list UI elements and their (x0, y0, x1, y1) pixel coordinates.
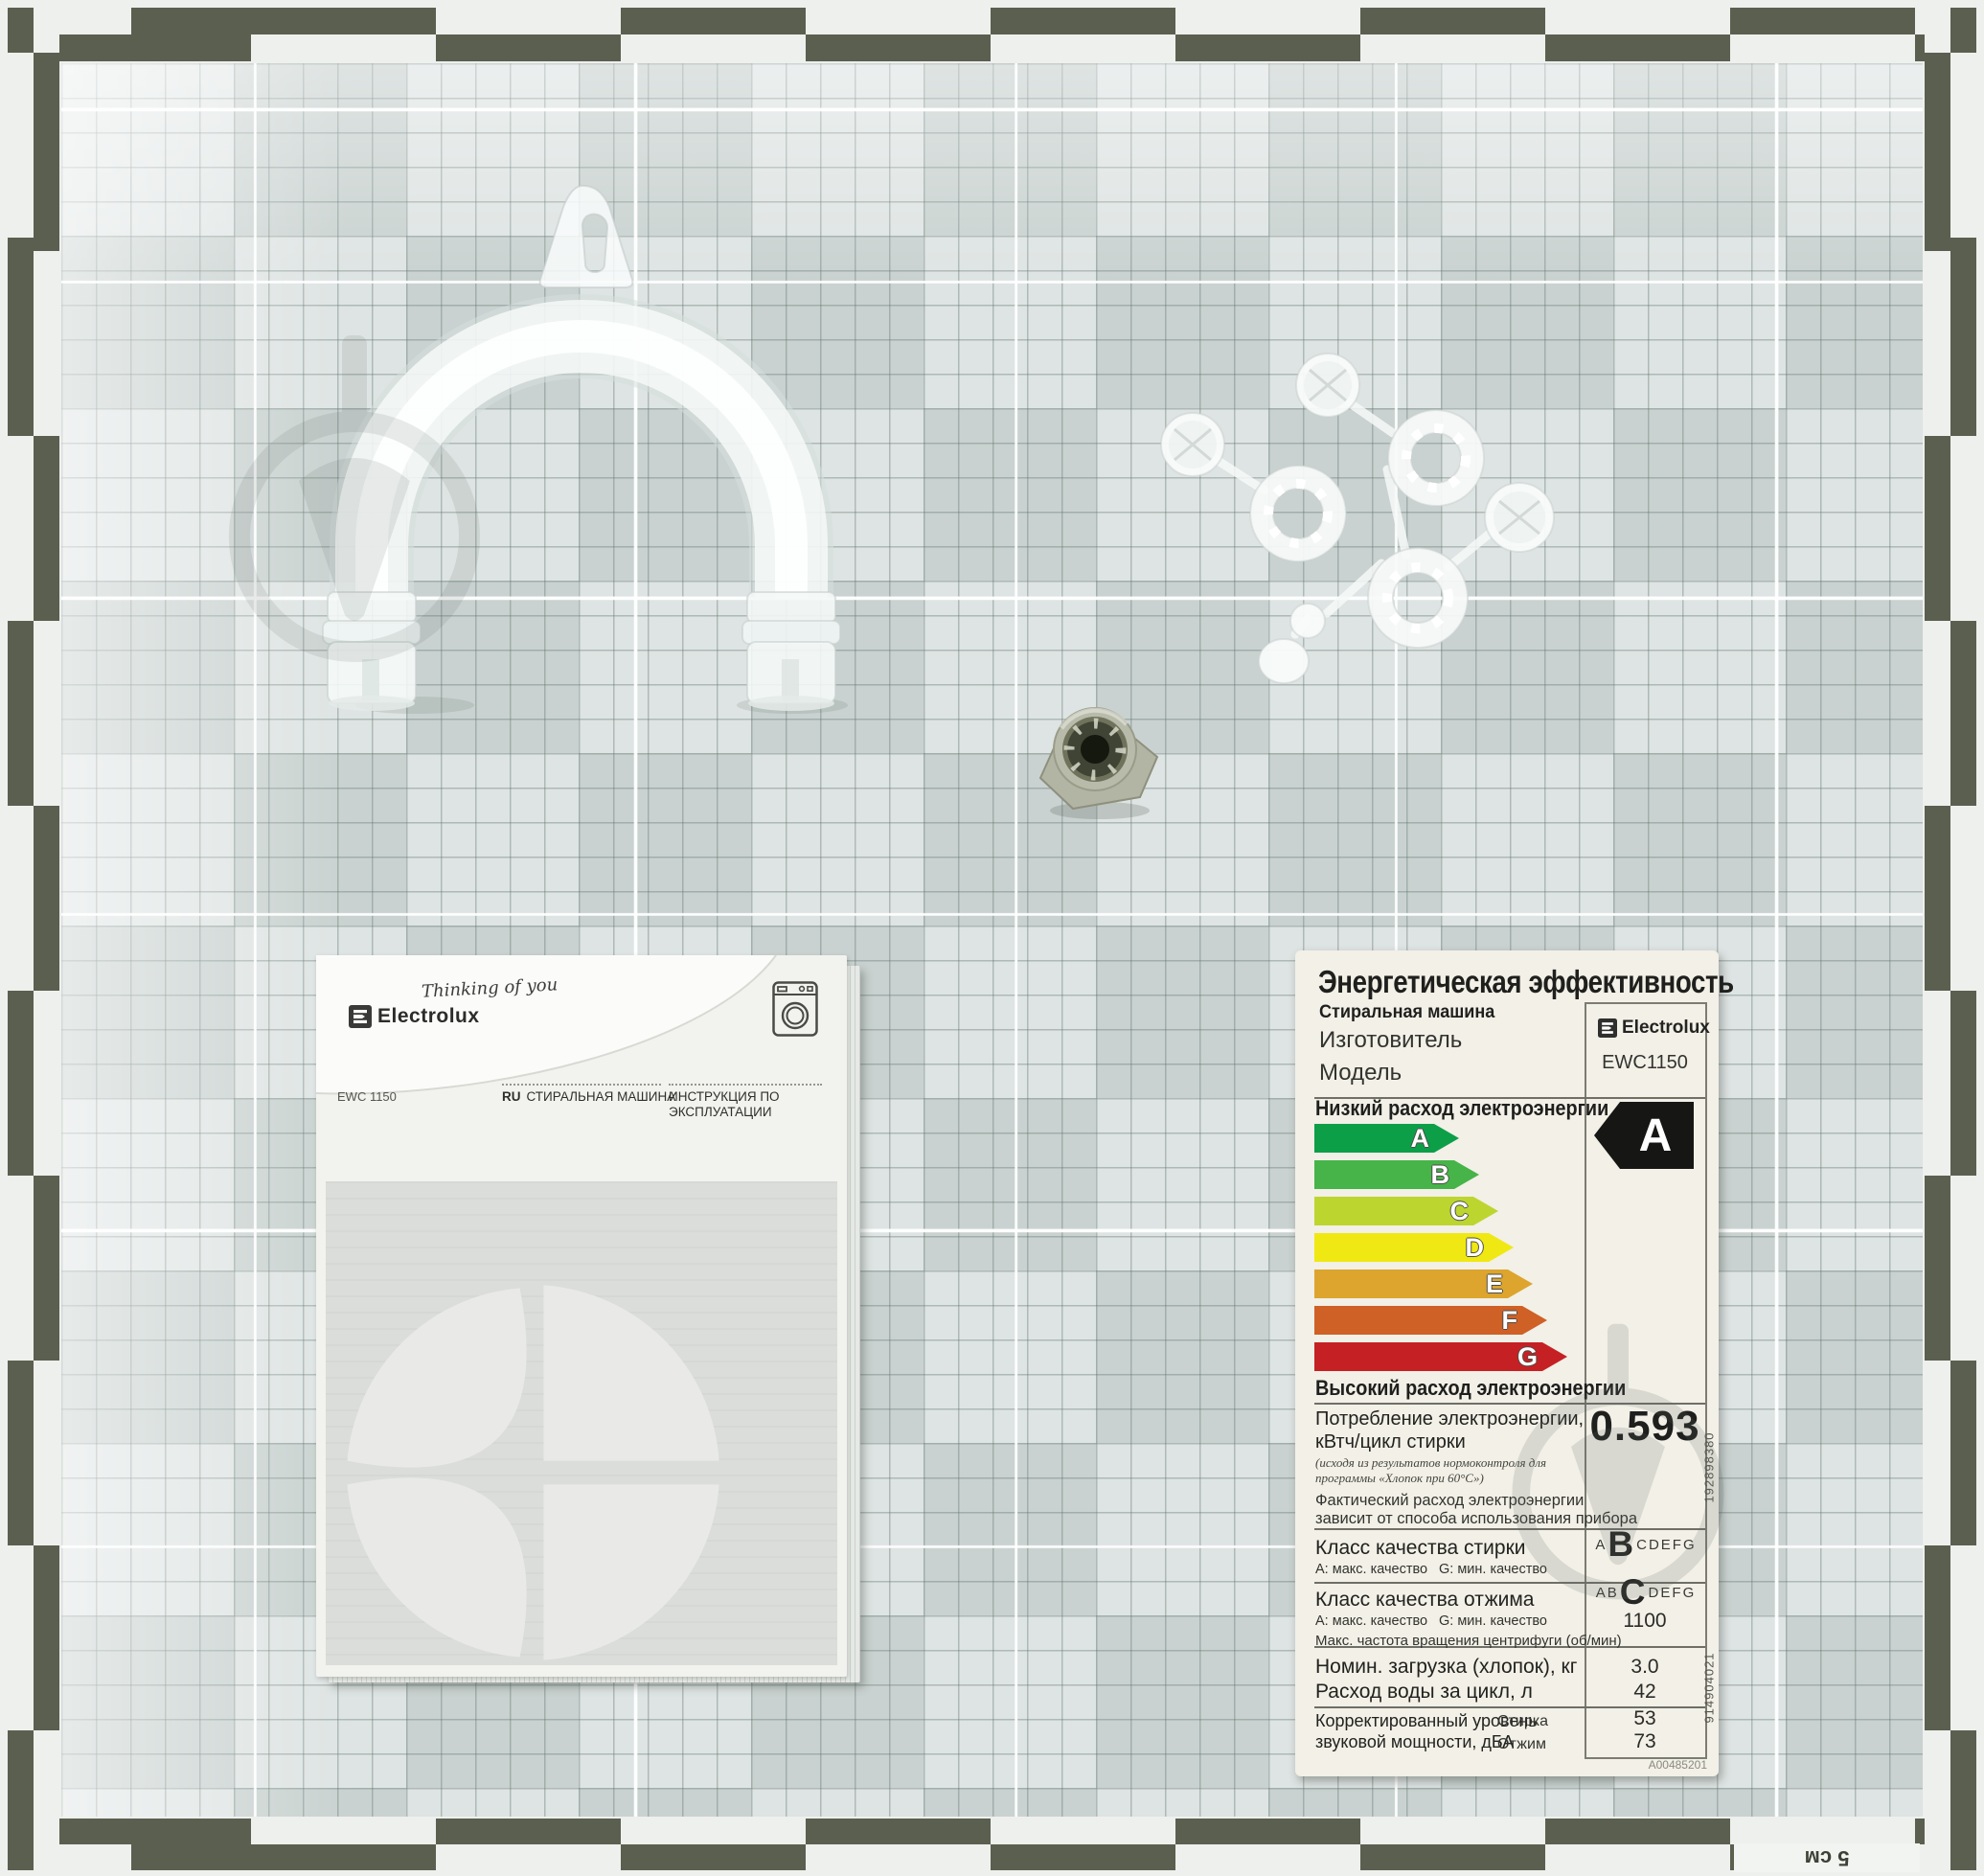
energy-bar-letter: C (1450, 1197, 1470, 1225)
brand-name: Electrolux (377, 1005, 480, 1028)
class-scale-letter-selected: C (1620, 1572, 1646, 1613)
class-scale-letter: F (1672, 1585, 1680, 1601)
hose-cuff-right (742, 592, 840, 711)
washing-machine-icon (772, 981, 818, 1037)
consumption-note: (исходя из результатов нормоконтроля для (1315, 1455, 1546, 1471)
consumption-value: 0.593 (1585, 1403, 1705, 1451)
spin-note-min: G: мин. качество (1439, 1613, 1547, 1629)
noise-label-2: звуковой мощности, дБА (1315, 1732, 1514, 1752)
noise-spin-value: 73 (1585, 1730, 1705, 1753)
energy-bar-letter: B (1431, 1160, 1450, 1189)
class-scale-letter: E (1660, 1585, 1670, 1601)
drain-hose-guide (316, 180, 853, 717)
energy-efficiency-label: Энергетическая эффективность Стиральная … (1295, 950, 1719, 1776)
brand-logo: Electrolux (349, 1005, 480, 1028)
plastic-caps-sprue (1130, 326, 1590, 709)
dotted-rule (502, 1084, 661, 1086)
electrolux-mark-icon (349, 1005, 372, 1028)
consumption-note-2: программы «Хлопок при 60°С») (1315, 1471, 1484, 1486)
class-scale-letter: B (1608, 1585, 1617, 1601)
class-scale-letter: G (1683, 1537, 1695, 1553)
side-code-lower: 914904021 (1702, 1636, 1717, 1741)
spin-note-max: A: макс. качество (1315, 1613, 1427, 1629)
scale-ruler-label: 5 см (1734, 1843, 1920, 1872)
consumption-label: Потребление электроэнергии, (1315, 1408, 1584, 1430)
energy-bars: ABCDEFG (1314, 1124, 1592, 1373)
manufacturer-label: Изготовитель (1319, 1027, 1462, 1054)
hanger-tab (540, 186, 633, 287)
spin-speed-value: 1100 (1585, 1610, 1705, 1633)
spin-class-scale: ABCDEFG (1585, 1573, 1705, 1612)
energy-bar-letter: G (1517, 1342, 1538, 1371)
wash-class-label: Класс качества стирки (1315, 1537, 1526, 1560)
spin-class-label: Класс качества отжима (1315, 1589, 1534, 1612)
cover-grey-panel (326, 1181, 837, 1665)
class-scale-letter: D (1649, 1585, 1659, 1601)
low-consumption-label: Низкий расход электроэнергии (1315, 1096, 1608, 1121)
label-brand-name: Electrolux (1622, 1018, 1710, 1039)
frame-right (1925, 8, 1976, 1870)
language-code: RU (502, 1089, 521, 1104)
electrolux-mark-icon (1598, 1018, 1617, 1038)
dotted-rule (669, 1084, 822, 1086)
open-rings (1250, 410, 1484, 648)
energy-bar-letter: D (1466, 1233, 1485, 1262)
class-scale-letter: A (1595, 1537, 1605, 1553)
water-value: 42 (1585, 1681, 1705, 1704)
energy-bar-g: G (1314, 1342, 1567, 1371)
frame-top (8, 8, 1976, 61)
product-photo-scene: 5 см (0, 0, 1984, 1876)
load-label: Номин. загрузка (хлопок), кг (1315, 1656, 1577, 1679)
document-code: A00485201 (1585, 1758, 1707, 1772)
energy-bar-f: F (1314, 1306, 1547, 1335)
model-label: Модель (1319, 1060, 1402, 1087)
hose-nut-fitting (1023, 696, 1167, 822)
noise-spin-label: Отжим (1497, 1736, 1546, 1753)
capped-plugs (1161, 354, 1554, 683)
actual-note: Фактический расход электроэнергии (1315, 1492, 1584, 1510)
wash-class-scale: ABCDEFG (1585, 1523, 1705, 1566)
label-subtitle: Стиральная машина (1319, 1002, 1494, 1023)
class-scale-letter: F (1673, 1537, 1681, 1553)
instruction-manual: Thinking of you Electrolux EWC 1150 RUСТ… (316, 955, 847, 1677)
energy-bar-d: D (1314, 1233, 1514, 1262)
energy-bar-letter: A (1411, 1124, 1430, 1153)
energy-bar-letter: F (1502, 1306, 1518, 1335)
efficiency-class-letter: A (1616, 1110, 1673, 1162)
class-scale-letter: A (1596, 1585, 1606, 1601)
wash-note-min: G: мин. качество (1439, 1562, 1547, 1577)
spin-speed-label: Макс. частота вращения центрифуги (об/ми… (1315, 1633, 1622, 1649)
load-value: 3.0 (1585, 1656, 1705, 1679)
noise-wash-label: Стирка (1497, 1713, 1548, 1730)
energy-bar-e: E (1314, 1270, 1533, 1298)
water-label: Расход воды за цикл, л (1315, 1681, 1533, 1704)
class-scale-letter-selected: B (1608, 1524, 1633, 1565)
hose-cuff-left (323, 592, 421, 711)
manual-product-line: RUСТИРАЛЬНАЯ МАШИНА (502, 1089, 675, 1104)
class-scale-letter: E (1661, 1537, 1671, 1553)
energy-bar-a: A (1314, 1124, 1459, 1153)
frame-bottom (8, 1819, 1976, 1870)
energy-bar-c: C (1314, 1197, 1498, 1225)
manual-model-number: EWC 1150 (337, 1089, 397, 1104)
label-model-value: EWC1150 (1585, 1052, 1705, 1074)
side-code-upper: 192898380 (1702, 1415, 1717, 1521)
wash-note-max: A: макс. качество (1315, 1562, 1427, 1577)
energy-bar-b: B (1314, 1160, 1479, 1189)
frame-left (8, 8, 59, 1870)
class-scale-letter: C (1636, 1537, 1647, 1553)
noise-wash-value: 53 (1585, 1707, 1705, 1730)
class-scale-letter: D (1649, 1537, 1659, 1553)
product-type: СТИРАЛЬНАЯ МАШИНА (527, 1089, 676, 1104)
manual-doc-title: ИНСТРУКЦИЯ ПО ЭКСПЛУАТАЦИИ (669, 1089, 780, 1120)
ruler-text: 5 см (1805, 1845, 1850, 1870)
label-brand-logo: Electrolux (1598, 1018, 1710, 1039)
class-scale-letter: G (1683, 1585, 1695, 1601)
label-title: Энергетическая эффективность (1318, 964, 1734, 1000)
electrolux-symbol-large (333, 1274, 730, 1665)
high-consumption-label: Высокий расход электроэнергии (1315, 1376, 1626, 1401)
energy-bar-letter: E (1486, 1270, 1503, 1298)
consumption-label-2: кВтч/цикл стирки (1315, 1431, 1466, 1453)
